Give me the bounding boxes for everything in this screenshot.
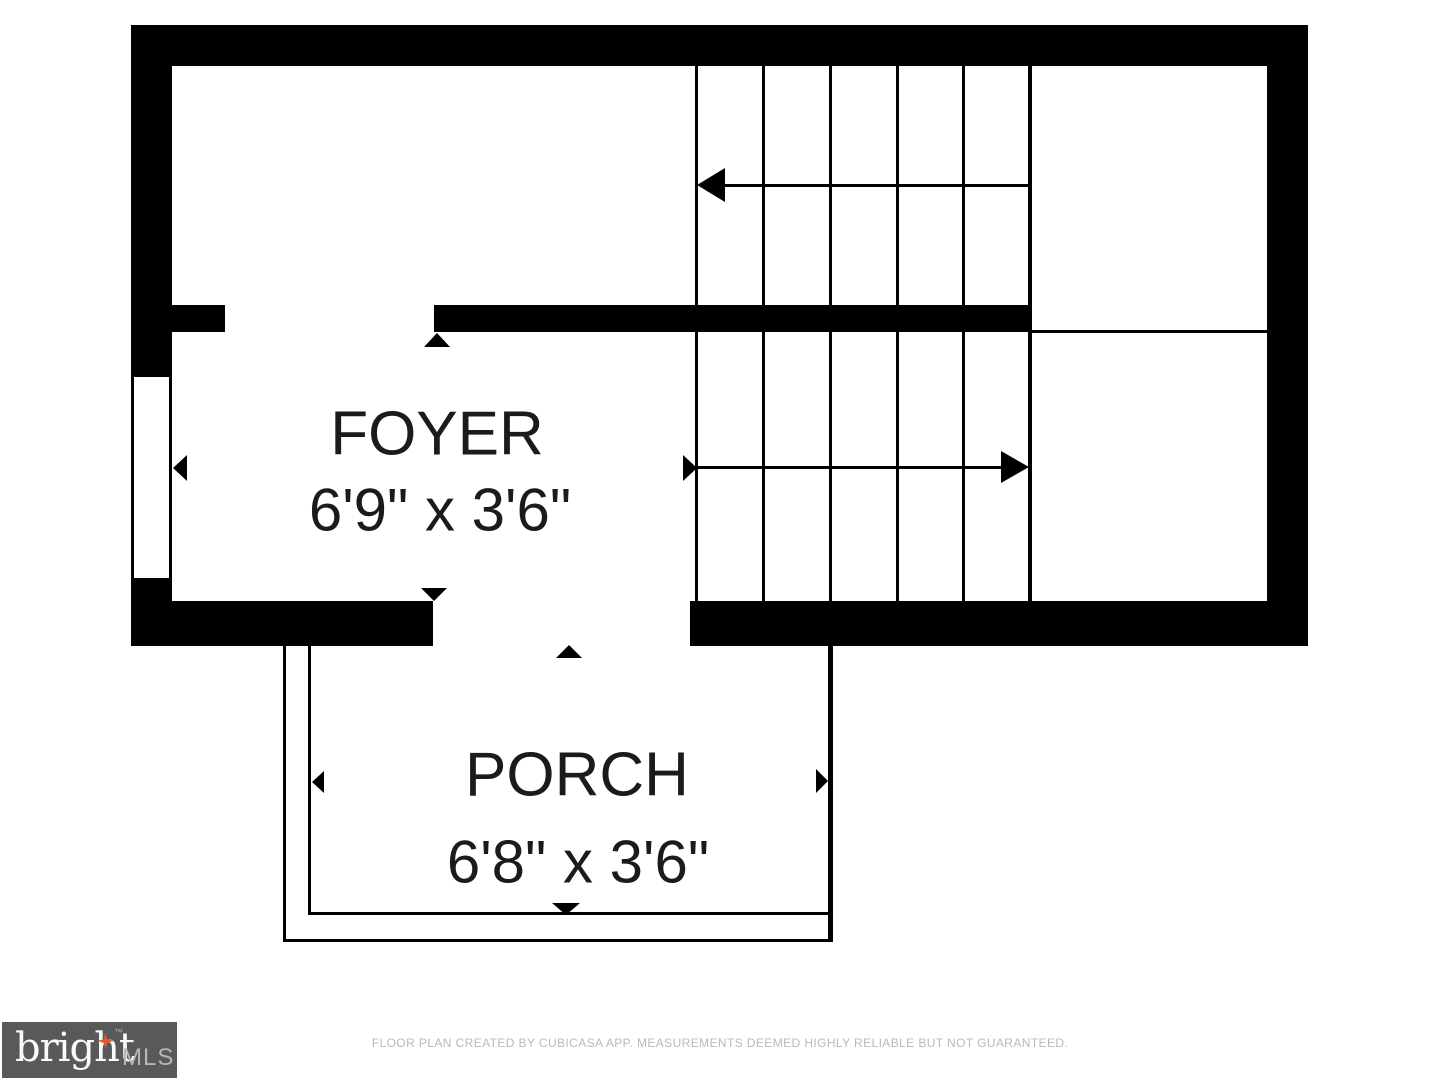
- porch-inner-left-line: [308, 646, 311, 915]
- door-opening-marker-up-icon: [424, 333, 450, 347]
- porch-marker-up-icon: [556, 645, 582, 658]
- interior-wall-stub-left: [172, 305, 225, 332]
- stair-landing-divider-line: [1029, 330, 1267, 333]
- porch-outer-left-line: [283, 646, 286, 942]
- foyer-dimensions: 6'9" x 3'6": [309, 476, 571, 545]
- foyer-label: FOYER: [330, 399, 544, 470]
- exterior-wall-right: [1267, 25, 1308, 646]
- floor-plan: FOYER 6'9" x 3'6" PORCH 6'8" x 3'6": [0, 0, 1440, 1080]
- stair-boundary-line: [1028, 66, 1032, 601]
- porch-label: PORCH: [465, 740, 689, 811]
- porch-right-line: [828, 646, 833, 942]
- window-opening-left-inner-line: [169, 377, 172, 578]
- stairs-upper-arrowhead-icon: [697, 168, 725, 202]
- stairs-lower-arrow-start-icon: [683, 455, 697, 481]
- porch-marker-left-icon: [312, 771, 324, 793]
- porch-dimensions: 6'8" x 3'6": [447, 828, 709, 897]
- door-opening-marker-down-icon: [421, 588, 447, 601]
- porch-marker-down-icon: [552, 903, 580, 915]
- interior-wall-mid: [434, 305, 1032, 332]
- stairs-upper-arrow-line: [700, 184, 1030, 187]
- exterior-wall-left-upper: [131, 25, 172, 377]
- exterior-wall-bottom-right: [690, 601, 1308, 646]
- floor-plan-disclaimer: FLOOR PLAN CREATED BY CUBICASA APP. MEAS…: [0, 1036, 1440, 1050]
- exterior-wall-top: [131, 25, 1308, 66]
- entry-arrow-icon: [173, 455, 187, 481]
- exterior-wall-bottom-left: [131, 601, 433, 646]
- stairs-lower-arrowhead-icon: [1001, 451, 1029, 483]
- porch-marker-right-icon: [816, 769, 828, 793]
- window-opening-left-outer-line: [131, 377, 134, 578]
- porch-outer-bottom-line: [283, 939, 833, 942]
- stairs-lower-arrow-line: [697, 466, 1007, 469]
- bright-mls-logo: bright ™ MLS: [2, 1022, 177, 1078]
